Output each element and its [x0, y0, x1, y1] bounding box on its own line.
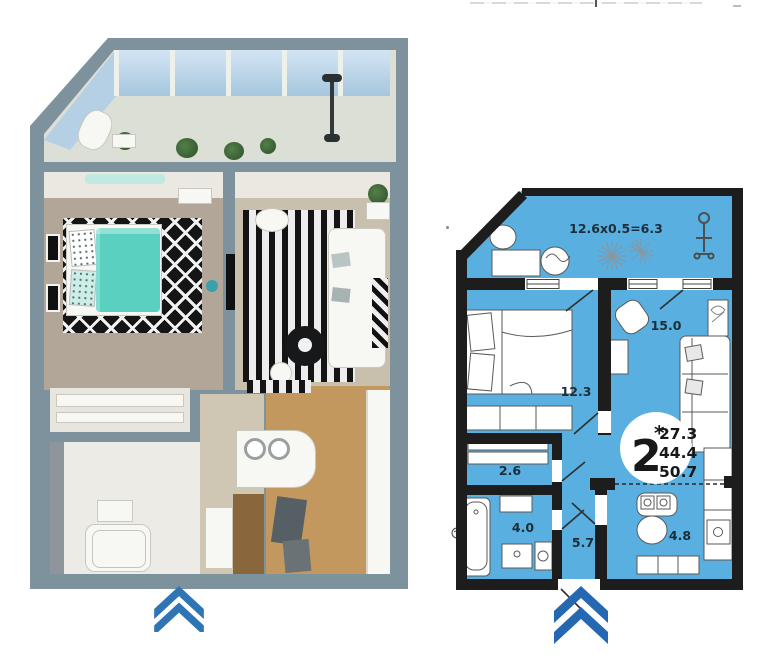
scanned-floorplan-page: { "plan2d": { "balcony_formula": "12.6x0… — [0, 0, 758, 664]
bathtub-inner-3d — [92, 530, 146, 568]
entrance-arrow-icon — [150, 586, 208, 632]
kitchen-cabinet-icon — [637, 556, 699, 574]
kitchen-stool-3d — [283, 539, 312, 573]
bathroom-area-label: 4.0 — [512, 520, 534, 535]
plant-icon — [176, 138, 198, 158]
wall-art-3d — [46, 234, 60, 262]
kitchen-area-label: 4.8 — [669, 528, 691, 543]
bathroom-tile-3d — [50, 442, 64, 574]
faucet-icon — [514, 551, 520, 557]
bedroom-dresser-3d — [178, 188, 212, 204]
bed-duvet-3d — [96, 228, 160, 312]
living-area-value: 27.3 — [659, 425, 697, 443]
sofa-pillow-3d — [331, 252, 351, 268]
tv-stand-icon — [610, 340, 628, 374]
balcony-area-label: 12.6x0.5=6.3 — [569, 221, 663, 236]
exercise-bike-handle-3d — [322, 74, 342, 82]
sofa-pillow-3d — [331, 287, 350, 303]
tv-3d — [226, 254, 235, 310]
closet-area-label: 2.6 — [499, 463, 521, 478]
exercise-bike-3d — [330, 76, 334, 140]
bed-pillow-3d — [68, 229, 97, 267]
planter-icon — [708, 300, 728, 336]
plant-icon — [260, 138, 276, 154]
bedroom-stool-3d — [206, 280, 218, 292]
living-area-label: 15.0 — [651, 318, 682, 333]
kitchen-sink-icon — [637, 516, 667, 544]
total-area-value: 50.7 — [659, 463, 697, 481]
pillow-icon — [467, 353, 494, 391]
bedroom-area-label: 12.3 — [561, 384, 592, 399]
kitchen-bench-3d — [271, 496, 307, 546]
sofa-pillow-icon — [685, 379, 703, 395]
bathroom-vanity-3d — [97, 500, 133, 522]
scan-artifact-line — [470, 2, 702, 4]
accent-pouf-3d — [372, 278, 388, 348]
hall-wardrobe-3d — [233, 494, 264, 574]
balcony-bench-icon — [492, 250, 540, 276]
scan-artifact-tick — [595, 0, 597, 7]
sink-icon — [244, 438, 266, 460]
plant-icon — [224, 142, 244, 160]
coffee-table-tray-3d — [298, 338, 312, 352]
hob-icon — [641, 496, 654, 509]
hob-icon — [657, 496, 670, 509]
apartment-area-value: 44.4 — [659, 444, 697, 462]
exercise-bike-base-3d — [324, 134, 340, 142]
floor-plan-2d: 2 * 27.3 44.4 50.7 12.6x0.5=6.3 15.0 12.… — [440, 180, 752, 652]
bed-pillow-3d — [69, 269, 97, 307]
plant-icon — [368, 184, 388, 204]
pillow-icon — [467, 313, 495, 351]
wall-art-3d — [46, 284, 60, 312]
scan-artifact-mark — [733, 5, 741, 7]
floor-lamp-3d — [255, 208, 289, 232]
floor-plan-3d — [30, 38, 408, 589]
closet-shelf-3d — [56, 412, 184, 423]
balcony-table-3d — [112, 134, 136, 148]
drain-icon — [474, 510, 478, 514]
bedroom-curtain-3d — [85, 174, 165, 184]
balcony-glazing — [114, 50, 390, 96]
kitchen-counter-3d — [366, 390, 390, 574]
hob-icon — [268, 438, 290, 460]
closet-shelf-3d — [56, 394, 184, 407]
hallway-area-label: 5.7 — [572, 535, 594, 550]
planter-3d — [366, 202, 390, 220]
entrance-arrow-icon — [554, 586, 608, 644]
bath-cabinet-icon — [500, 496, 532, 512]
stove-icon — [707, 520, 730, 544]
kitchen-mat-3d — [247, 380, 311, 393]
wardrobe-icon — [465, 406, 572, 430]
hall-runner-3d — [206, 508, 232, 568]
sofa-pillow-icon — [685, 345, 703, 362]
